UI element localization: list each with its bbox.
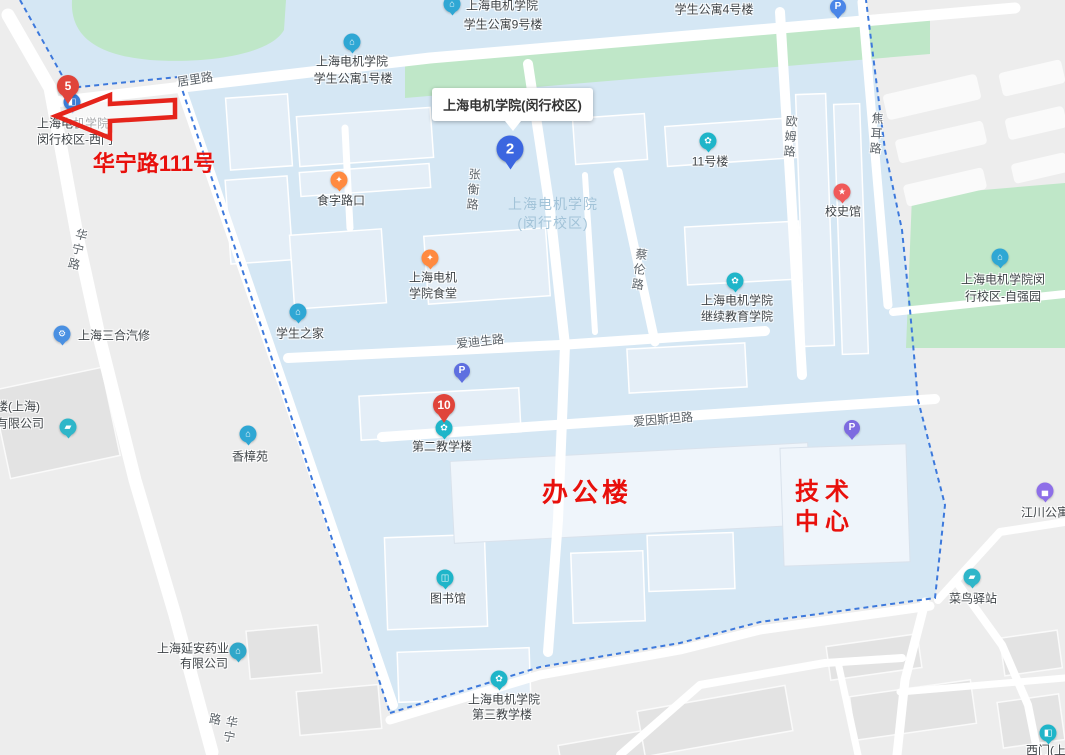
- marker-2-pin[interactable]: 2: [497, 136, 524, 163]
- ziqiangyuan-label-line1: 上海电机学院闵: [961, 273, 1045, 288]
- honglou-truck-icon[interactable]: ▰: [60, 419, 77, 436]
- honglou-label-line2: 递有限公司: [0, 417, 44, 432]
- xiangzhangyuan-label: 香樟苑: [232, 450, 268, 465]
- dorm9-label-line1: 上海电机学院: [466, 0, 538, 14]
- continuing-education-leaf-icon[interactable]: ✿: [727, 273, 744, 290]
- student-home-icon[interactable]: ⌂: [290, 304, 307, 321]
- library-label: 图书馆: [430, 592, 466, 607]
- leaf-glyph: ✿: [495, 675, 503, 684]
- truck-glyph: ▰: [65, 423, 72, 432]
- road-label-jiaoerlu: 焦耳路: [866, 111, 886, 157]
- dorm9-label-line2: 学生公寓9号楼: [464, 18, 543, 33]
- gear-glyph: ⚙: [58, 330, 66, 339]
- food-glyph: ✦: [335, 176, 343, 185]
- canteen-label-line2: 学院食堂: [409, 287, 457, 302]
- bed-glyph: ▄: [1042, 487, 1048, 496]
- ziqiangyuan-building-icon[interactable]: ⌂: [992, 249, 1009, 266]
- home-glyph: ⌂: [295, 308, 300, 317]
- pharma-label-line2: 有限公司: [180, 657, 228, 672]
- gate-glyph: ◧: [1044, 729, 1053, 738]
- history-museum-star-icon[interactable]: ★: [834, 184, 851, 201]
- building-glyph: ⌂: [235, 647, 240, 656]
- teaching-bldg3-label-line2: 第三教学楼: [472, 708, 532, 723]
- shizilukou-label: 食字路口: [317, 194, 365, 209]
- jiangchuan-label: 江川公寓: [1021, 506, 1065, 521]
- dorm1-building-icon[interactable]: ⌂: [344, 34, 361, 51]
- parking-icon-right[interactable]: P: [844, 420, 860, 436]
- book-glyph: ◫: [441, 574, 450, 583]
- teaching-bldg3-leaf-icon[interactable]: ✿: [491, 671, 508, 688]
- marker-10-number: 10: [437, 398, 450, 412]
- dorm1-label-line2: 学生公寓1号楼: [314, 72, 393, 87]
- map-canvas[interactable]: 居里路 张衡路 蔡伦路 欧姆路 焦耳路 爱迪生路 爱因斯坦路 华宁路 华宁路 上…: [0, 0, 1065, 755]
- library-book-icon[interactable]: ◫: [437, 570, 454, 587]
- pharma-label-line1: 上海延安药业: [157, 642, 229, 657]
- continuing-education-label-line2: 继续教育学院: [701, 310, 773, 325]
- dorm4-label: 学生公寓4号楼: [675, 3, 754, 18]
- building-glyph: ⌂: [245, 430, 250, 439]
- cainiao-truck-icon[interactable]: ▰: [964, 569, 981, 586]
- cainiao-label: 菜鸟驿站: [949, 592, 997, 607]
- campus-watermark-line2: (闵行校区): [517, 213, 588, 233]
- ziqiangyuan-label-line2: 行校区-自强园: [965, 290, 1041, 305]
- parking-glyph: P: [835, 2, 842, 12]
- road-label-huaninglu-south: 华宁路: [201, 711, 242, 755]
- red-office-note: 办公楼: [542, 473, 632, 510]
- west-gate-label-line1: 上海电机学院: [37, 117, 109, 132]
- parking-icon-mid[interactable]: P: [454, 363, 470, 379]
- building11-leaf-icon[interactable]: ✿: [700, 133, 717, 150]
- building11-label: 11号楼: [692, 155, 728, 170]
- red-tech-note-line2: 中心: [795, 502, 855, 537]
- leaf-glyph: ✿: [704, 137, 712, 146]
- shizilukou-food-icon[interactable]: ✦: [331, 172, 348, 189]
- leaf-glyph: ✿: [731, 277, 739, 286]
- truck-glyph: ▰: [969, 573, 976, 582]
- jiangchuan-bed-icon[interactable]: ▄: [1037, 483, 1054, 500]
- xiangzhangyuan-building-icon[interactable]: ⌂: [240, 426, 257, 443]
- road-label-oumulu: 欧姆路: [780, 114, 800, 160]
- road-label-zhanghenglu: 张衡路: [463, 167, 483, 213]
- student-home-label: 学生之家: [276, 327, 324, 342]
- food-glyph: ✦: [426, 254, 434, 263]
- auto-repair-label: 上海三合汽修: [78, 329, 150, 344]
- marker-5-number: 5: [65, 79, 72, 93]
- marker-10-pin[interactable]: 10: [433, 394, 455, 416]
- parking-glyph: P: [849, 423, 856, 433]
- honglou-label-line1: 红楼(上海): [0, 400, 40, 415]
- marker-2-number: 2: [506, 141, 514, 158]
- campus-callout-title: 上海电机学院(闵行校区): [443, 95, 582, 114]
- teaching-bldg3-label-line1: 上海电机学院: [468, 693, 540, 708]
- star-glyph: ★: [838, 188, 846, 197]
- building-glyph: ⌂: [349, 38, 354, 47]
- west-gate2-gate-icon[interactable]: ◧: [1040, 725, 1057, 742]
- building-glyph: ⌂: [449, 0, 454, 9]
- canteen-food-icon[interactable]: ✦: [422, 250, 439, 267]
- auto-repair-gear-icon[interactable]: ⚙: [54, 326, 71, 343]
- pharma-building-icon[interactable]: ⌂: [230, 643, 247, 660]
- building-glyph: ⌂: [997, 253, 1002, 262]
- campus-callout[interactable]: 上海电机学院(闵行校区): [432, 88, 593, 121]
- red-address-note: 华宁路111号: [93, 146, 215, 178]
- campus-watermark-line1: 上海电机学院: [508, 194, 598, 214]
- parking-glyph: P: [459, 366, 466, 376]
- marker-5-pin[interactable]: 5: [57, 75, 79, 97]
